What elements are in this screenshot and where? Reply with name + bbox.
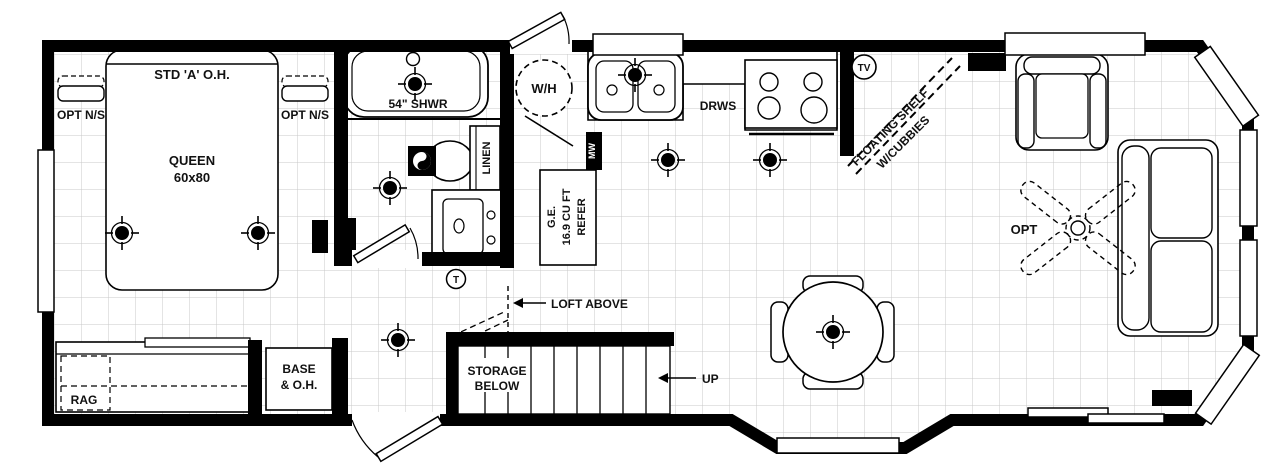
- label-opt-ns-left: OPT N/S: [57, 108, 105, 122]
- label-fridge-2: 16.9 CU FT: [561, 188, 573, 245]
- front-door: [508, 12, 572, 54]
- label-opt-ns-right: OPT N/S: [281, 108, 329, 122]
- shower-head-icon: [407, 53, 420, 66]
- nightstand-right: [282, 76, 328, 101]
- stove: [745, 60, 837, 134]
- label-microwave: MW: [587, 143, 597, 159]
- end-window-upper: [1240, 130, 1257, 226]
- thermostat-icon: T: [447, 270, 466, 289]
- label-base-1: BASE: [282, 362, 315, 376]
- label-storage-1: STORAGE: [467, 364, 526, 378]
- label-drawers: DRWS: [700, 99, 736, 113]
- bedroom-window: [38, 150, 54, 312]
- wall-tv: [968, 53, 1006, 71]
- label-loft-above: LOFT ABOVE: [551, 297, 628, 311]
- label-shower: 54" SHWR: [388, 97, 447, 111]
- label-up: UP: [702, 372, 719, 386]
- slider-window-2: [1088, 414, 1164, 423]
- label-storage-2: BELOW: [475, 379, 520, 393]
- armchair: [1016, 54, 1108, 150]
- label-std-a-oh: STD 'A' O.H.: [154, 67, 230, 82]
- living-window: [1005, 33, 1145, 55]
- label-linen: LINEN: [481, 141, 493, 174]
- vanity-sink: [432, 190, 502, 262]
- floor-plan: T TV STD 'A' O.H. OPT N/S OPT N/S QUEEN …: [0, 0, 1268, 475]
- tv-jack-icon: TV: [852, 55, 876, 79]
- label-wh: W/H: [531, 81, 556, 96]
- toilet: [408, 141, 473, 181]
- media-cabinet: [1152, 390, 1192, 406]
- svg-text:T: T: [453, 275, 459, 286]
- label-fan-opt: OPT: [1011, 222, 1038, 237]
- label-rag: RAG: [71, 393, 98, 407]
- label-queen-size: 60x80: [174, 170, 210, 185]
- svg-text:TV: TV: [858, 63, 871, 74]
- dining-bay-window: [777, 438, 899, 453]
- nightstand-left: [58, 76, 104, 101]
- end-window-lower: [1240, 240, 1257, 336]
- sofa: [1118, 140, 1218, 336]
- label-base-2: & O.H.: [281, 378, 318, 392]
- label-fridge-3: REFER: [576, 198, 588, 235]
- kitchen-window: [593, 34, 683, 55]
- entry-door: [352, 412, 443, 461]
- label-fridge-1: G.E.: [546, 206, 558, 228]
- label-queen: QUEEN: [169, 153, 215, 168]
